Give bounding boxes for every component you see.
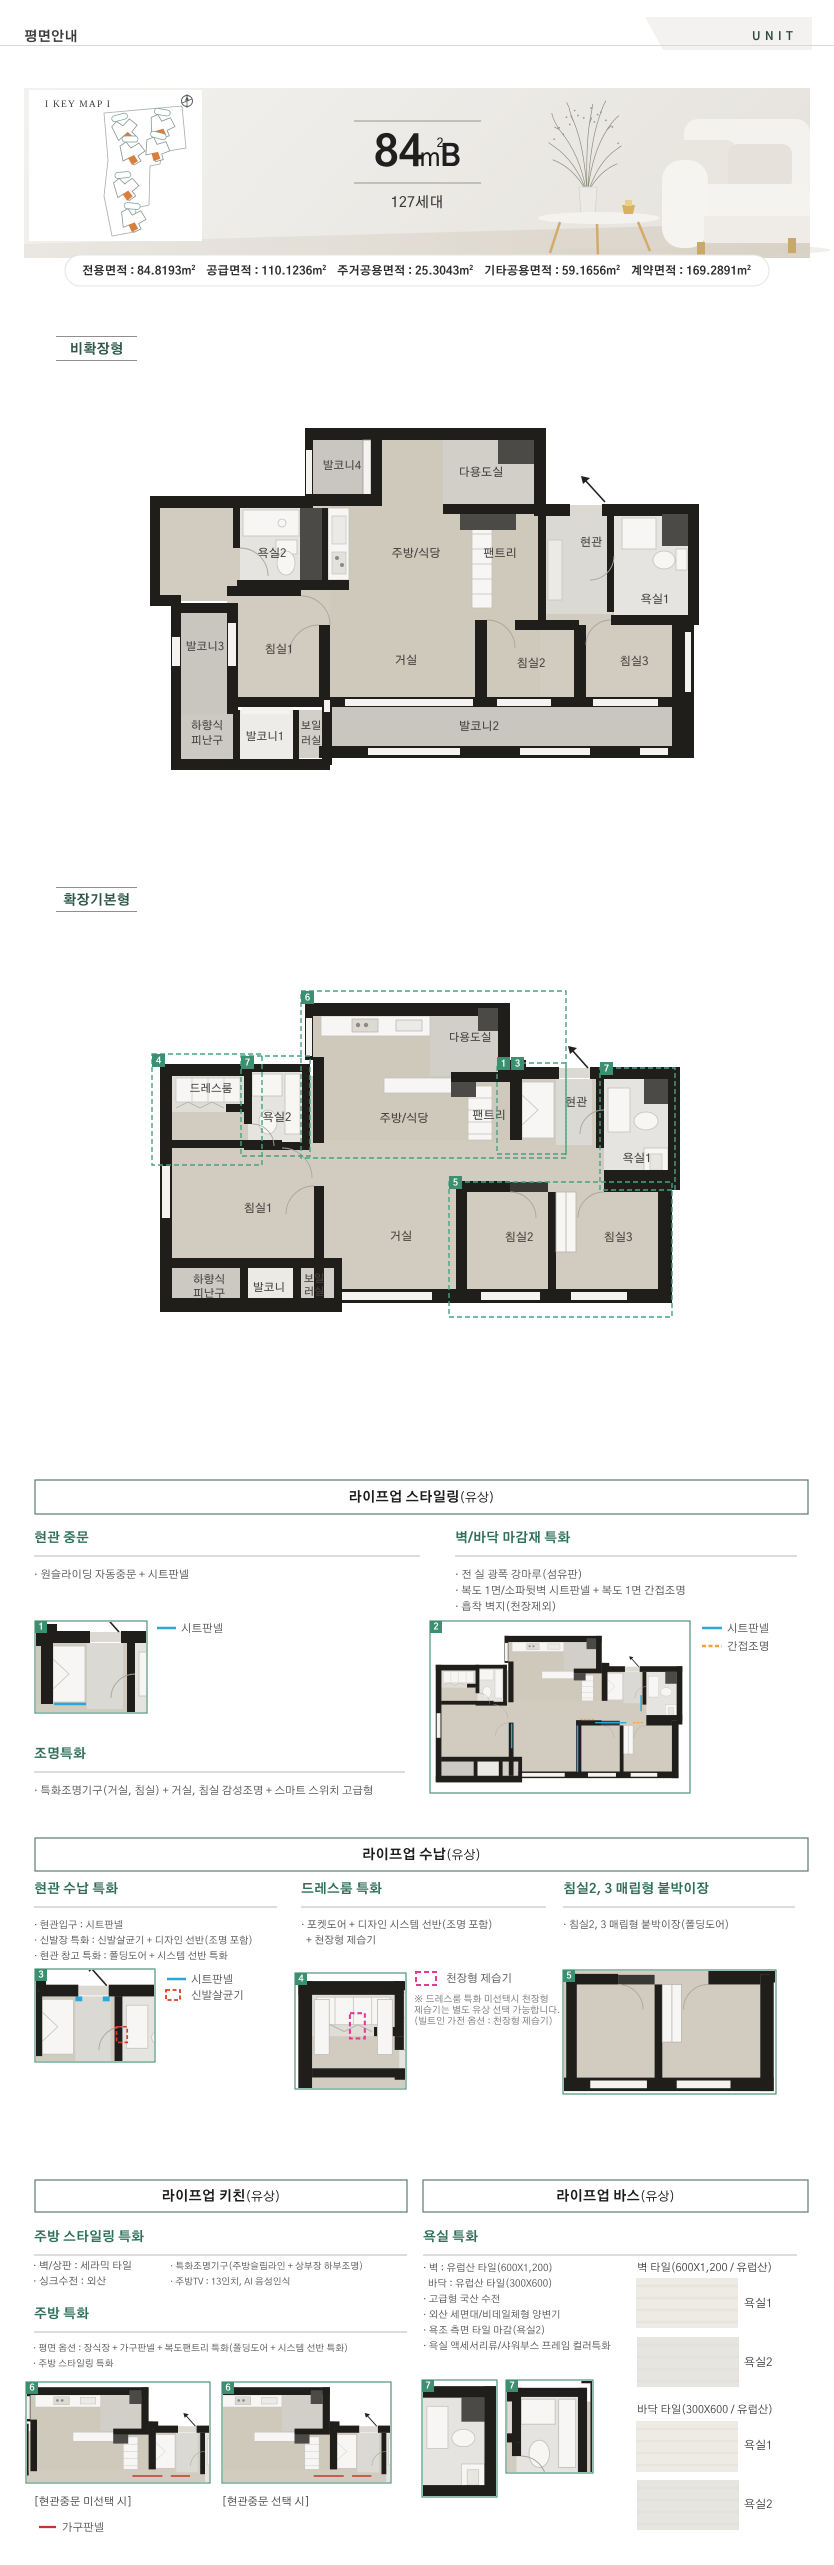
svg-text:I KEY MAP I: I KEY MAP I (45, 100, 111, 110)
